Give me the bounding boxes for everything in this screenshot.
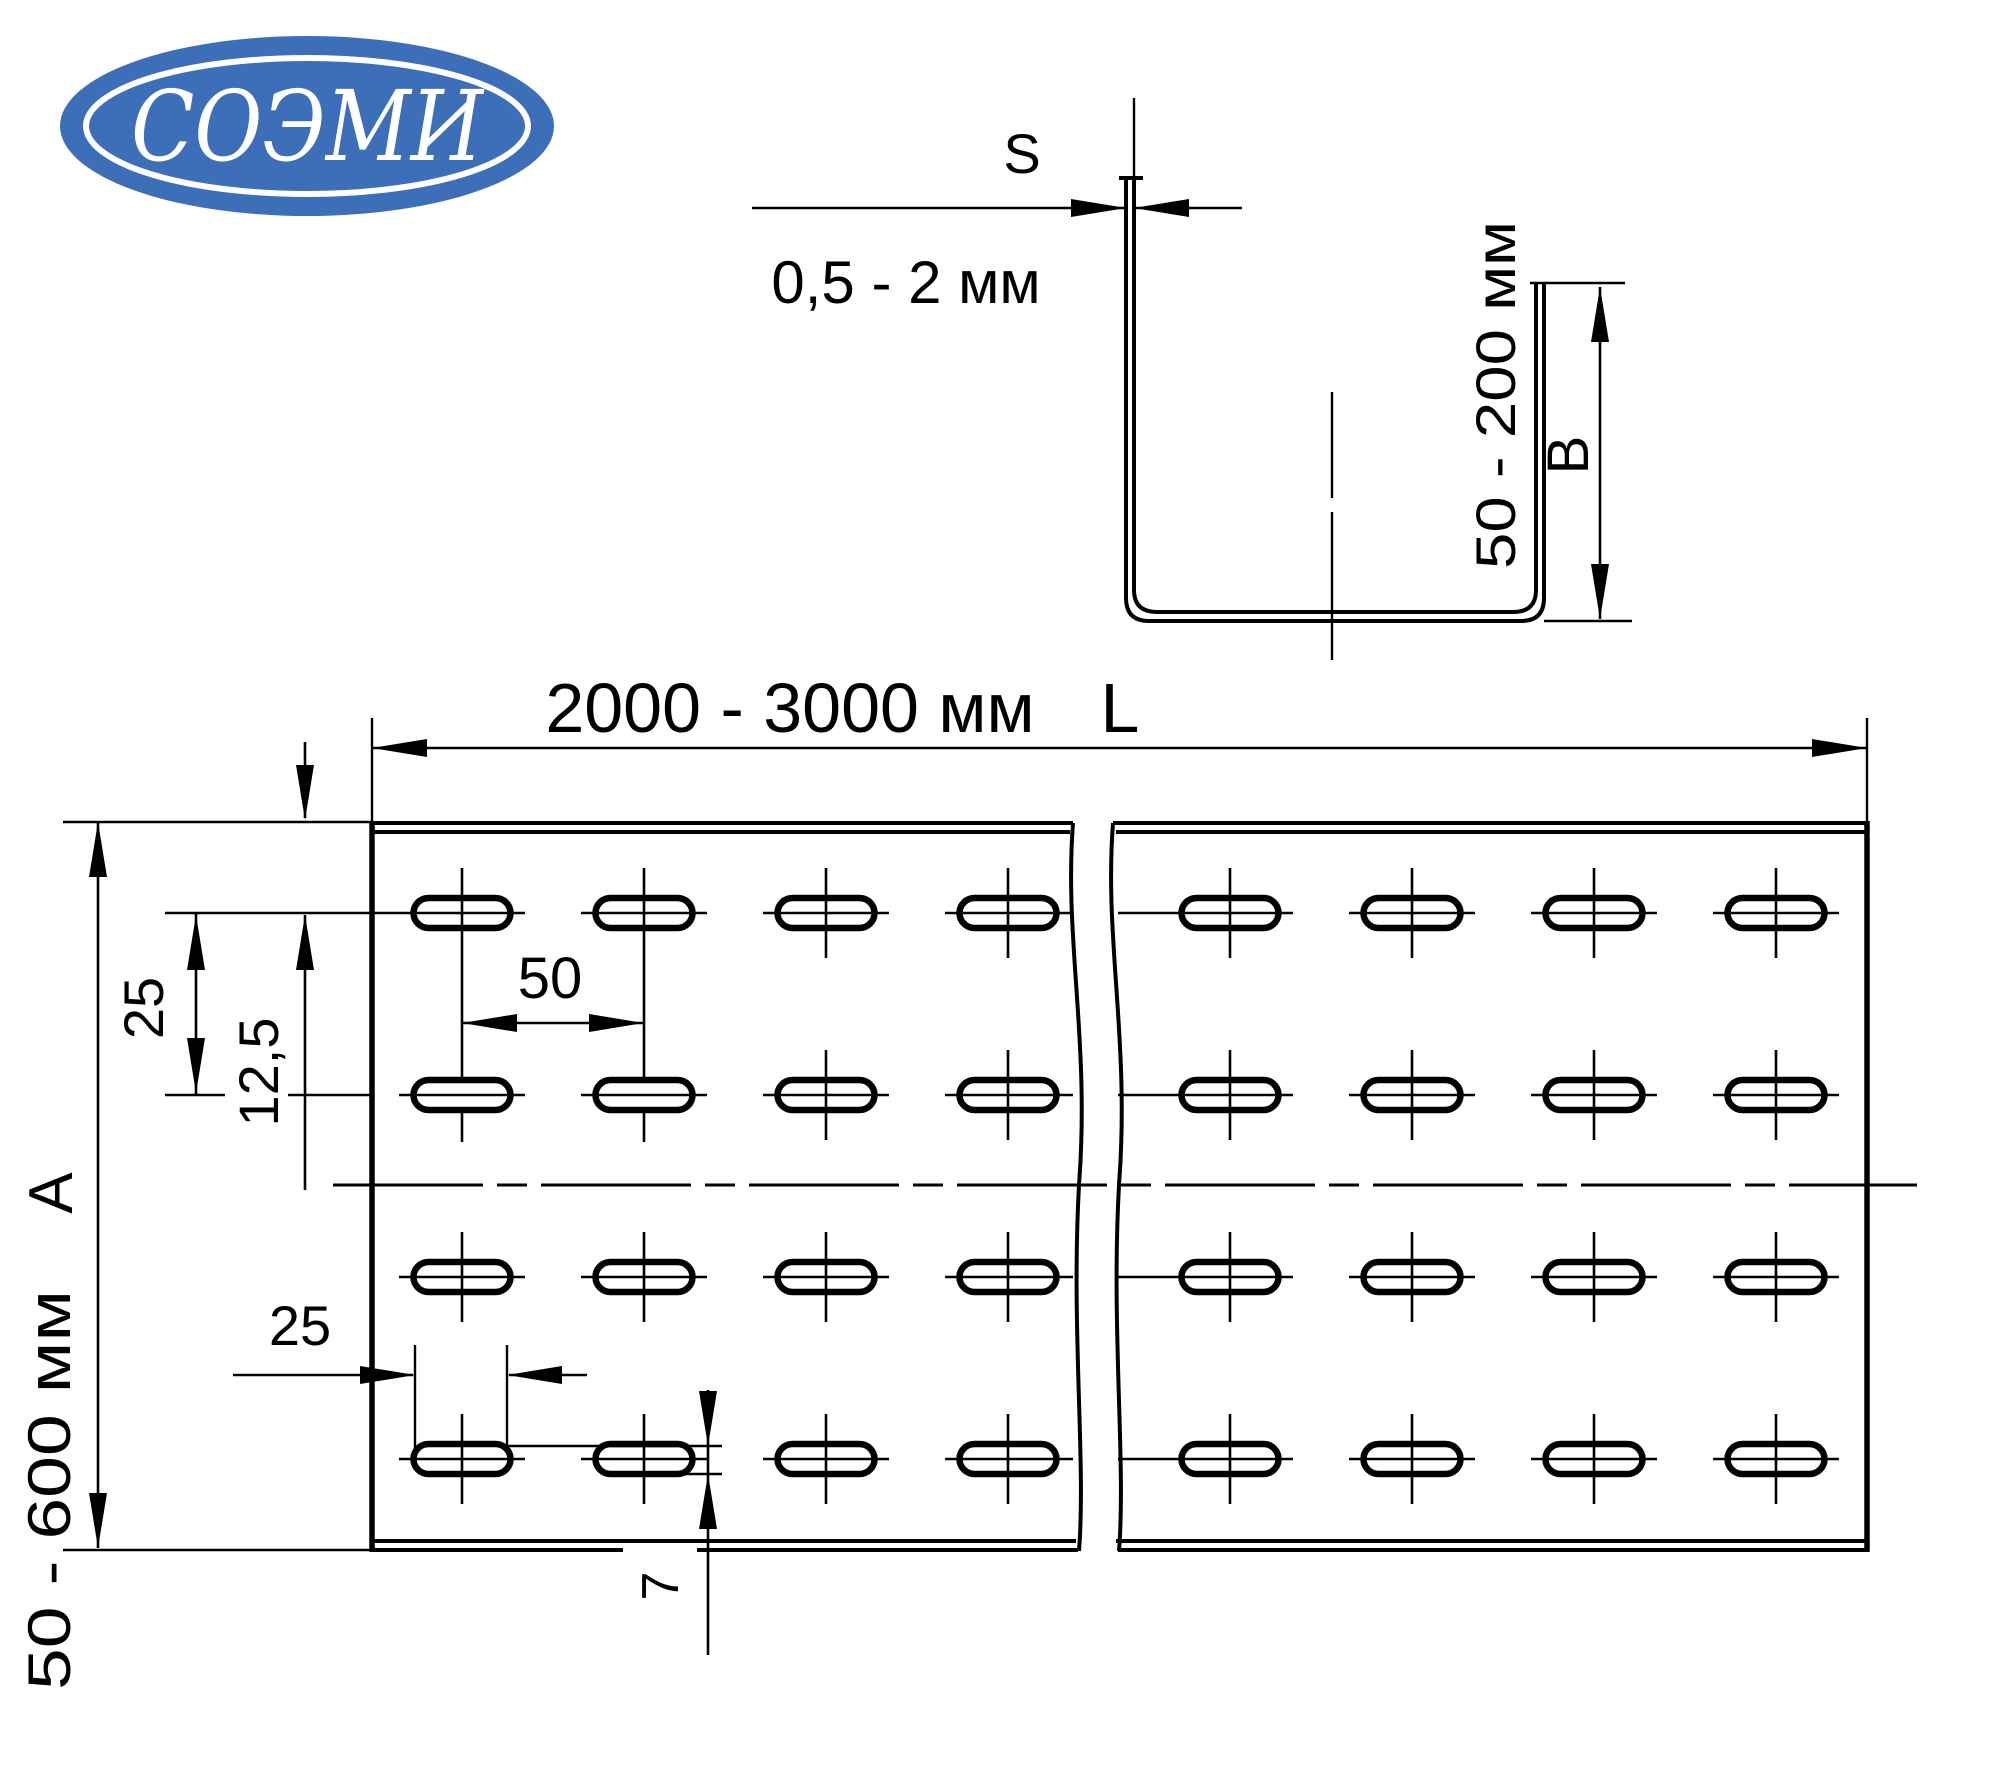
section-view: S 0,5 - 2 мм 50 - 200 мм B: [752, 98, 1632, 660]
arrow-up-icon: [187, 915, 205, 970]
arrow-down-icon: [1591, 564, 1609, 619]
arrow-left-icon: [507, 1366, 562, 1384]
drawing-page: СОЭМИ S 0,5 - 2 мм 50 - 200 мм B: [0, 0, 2000, 1771]
arrow-up-icon: [296, 915, 314, 970]
slot-width-label: 7: [632, 1572, 690, 1601]
flange-height-range-label: 50 - 200 мм: [1464, 221, 1527, 569]
width-range-label: 50 - 600 мм: [16, 1290, 83, 1690]
arrow-left-icon: [1134, 199, 1189, 217]
row-spacing-label: 25: [112, 977, 175, 1039]
width-symbol: A: [17, 1172, 86, 1214]
thickness-range-label: 0,5 - 2 мм: [771, 249, 1040, 316]
logo-text: СОЭМИ: [131, 70, 485, 183]
arrow-right-icon: [589, 1014, 644, 1032]
arrow-right-icon: [1071, 199, 1126, 217]
break-line-right: [1111, 823, 1122, 1551]
plan-view: 2000 - 3000 мм L 50 - 600 мм A 25 12,5 5…: [16, 669, 1917, 1690]
arrow-down-icon: [89, 1493, 107, 1548]
arrow-down-icon: [699, 1391, 717, 1446]
length-range-label: 2000 - 3000 мм: [545, 669, 1034, 747]
arrow-up-icon: [89, 822, 107, 877]
break-line-left: [1071, 823, 1082, 1551]
arrow-left-icon: [462, 1014, 517, 1032]
length-symbol: L: [1101, 669, 1140, 747]
arrow-down-icon: [187, 1038, 205, 1093]
slot-length-label: 25: [269, 1294, 331, 1357]
arrow-right-icon: [360, 1366, 415, 1384]
arrow-left-icon: [372, 739, 427, 757]
company-logo: СОЭМИ: [60, 36, 554, 216]
slot-pitch-label: 50: [518, 946, 583, 1011]
arrow-up-icon: [699, 1474, 717, 1529]
arrow-up-icon: [1591, 287, 1609, 342]
row-offset-label: 12,5: [227, 1018, 290, 1127]
flange-height-symbol: B: [1536, 436, 1601, 475]
arrow-right-icon: [1812, 739, 1867, 757]
arrow-down-icon: [296, 765, 314, 820]
technical-drawing: СОЭМИ S 0,5 - 2 мм 50 - 200 мм B: [0, 0, 2000, 1771]
thickness-symbol: S: [1003, 122, 1040, 185]
